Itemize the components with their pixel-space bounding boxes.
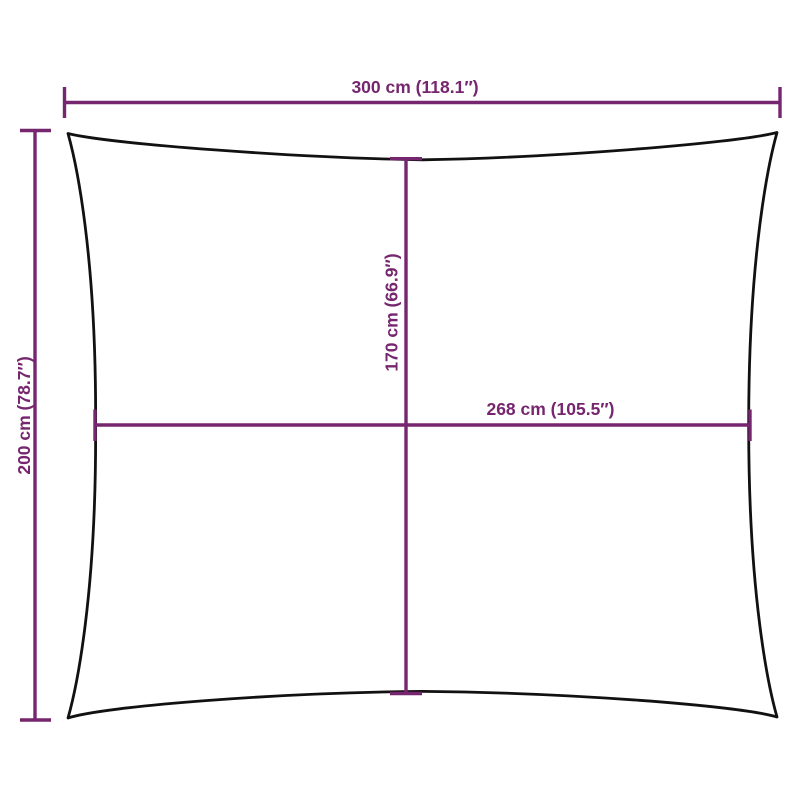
svg-text:300 cm (118.1″): 300 cm (118.1″): [351, 77, 478, 97]
svg-text:170 cm (66.9″): 170 cm (66.9″): [381, 253, 401, 371]
svg-text:268 cm (105.5″): 268 cm (105.5″): [486, 399, 614, 419]
svg-text:200 cm (78.7″): 200 cm (78.7″): [14, 356, 34, 474]
